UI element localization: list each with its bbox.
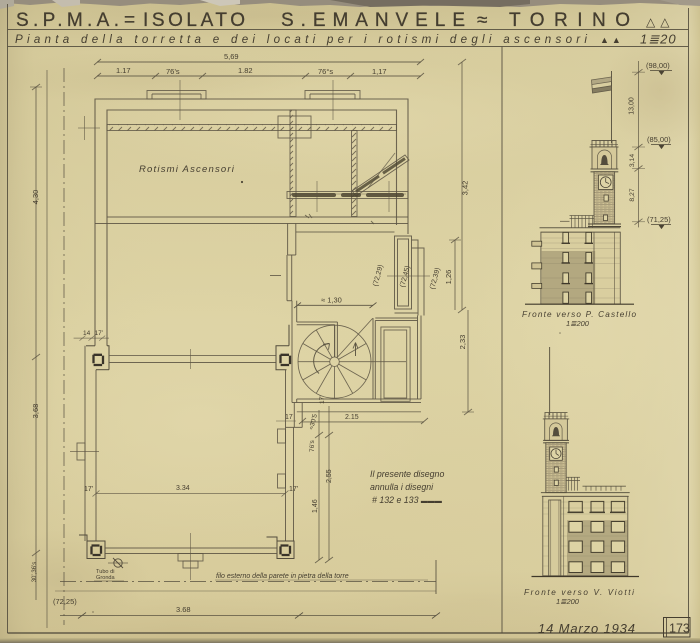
svg-text:1.17: 1.17 — [116, 66, 131, 75]
svg-text:1,26: 1,26 — [444, 270, 453, 285]
svg-text:1≣200: 1≣200 — [566, 319, 590, 328]
svg-text:1≣20: 1≣20 — [640, 32, 677, 47]
svg-text:≈: ≈ — [477, 10, 487, 31]
svg-text:1.82: 1.82 — [238, 66, 253, 75]
svg-text:17’: 17’ — [95, 330, 104, 337]
svg-text:annulla i disegni: annulla i disegni — [370, 482, 434, 492]
svg-text:13,00: 13,00 — [629, 97, 636, 115]
svg-text:173: 173 — [669, 622, 690, 636]
svg-text:17: 17 — [285, 414, 293, 421]
svg-text:8,27: 8,27 — [629, 188, 636, 201]
svg-text:(85,00): (85,00) — [647, 135, 671, 144]
svg-text:3,14: 3,14 — [629, 154, 636, 167]
svg-text:3,68: 3,68 — [31, 404, 40, 419]
svg-text:76°s: 76°s — [318, 67, 333, 76]
svg-text:4,30: 4,30 — [31, 190, 40, 205]
svg-text:1≣200: 1≣200 — [556, 597, 580, 606]
svg-text:5,69: 5,69 — [224, 52, 239, 61]
svg-text:17’: 17’ — [84, 486, 94, 493]
svg-text:▲▲: ▲▲ — [600, 35, 624, 45]
svg-text:14: 14 — [83, 330, 91, 337]
svg-text:17’: 17’ — [289, 486, 299, 493]
svg-text:30’,36’s: 30’,36’s — [32, 562, 38, 583]
svg-text:≈ 1,30: ≈ 1,30 — [321, 296, 342, 305]
svg-text:(71,25): (71,25) — [647, 215, 671, 224]
svg-text:ISOLATO: ISOLATO — [143, 10, 245, 31]
svg-text:2,33: 2,33 — [458, 335, 467, 350]
svg-text:Gronda: Gronda — [96, 575, 116, 581]
svg-text:14 Marzo 1934: 14 Marzo 1934 — [538, 621, 635, 636]
svg-text:3.68: 3.68 — [176, 605, 191, 614]
svg-text:3.34: 3.34 — [176, 485, 190, 492]
svg-text:1,46: 1,46 — [312, 499, 319, 513]
svg-text:1,17: 1,17 — [372, 67, 387, 76]
svg-text:△△: △△ — [646, 15, 674, 29]
svg-text:3,42: 3,42 — [461, 181, 470, 196]
svg-text:Il presente disegno: Il presente disegno — [370, 469, 444, 479]
svg-text:Rotismi Ascensori: Rotismi Ascensori — [139, 164, 235, 175]
svg-text:Fronte verso V. Viotti: Fronte verso V. Viotti — [524, 588, 634, 597]
svg-text:(98,00): (98,00) — [646, 61, 670, 70]
svg-text:2,55: 2,55 — [326, 469, 333, 483]
svg-text:(72,25): (72,25) — [53, 597, 77, 606]
svg-text:76’s: 76’s — [166, 67, 180, 76]
svg-text:2.15: 2.15 — [345, 414, 359, 421]
svg-text:=: = — [124, 10, 135, 31]
svg-text:76’s: 76’s — [309, 439, 316, 452]
svg-text:Fronte verso P. Castello: Fronte verso P. Castello — [522, 310, 636, 319]
svg-text:filo esterno della parete in p: filo esterno della parete in pietra dell… — [216, 573, 349, 580]
svg-text:17’: 17’ — [319, 395, 326, 404]
